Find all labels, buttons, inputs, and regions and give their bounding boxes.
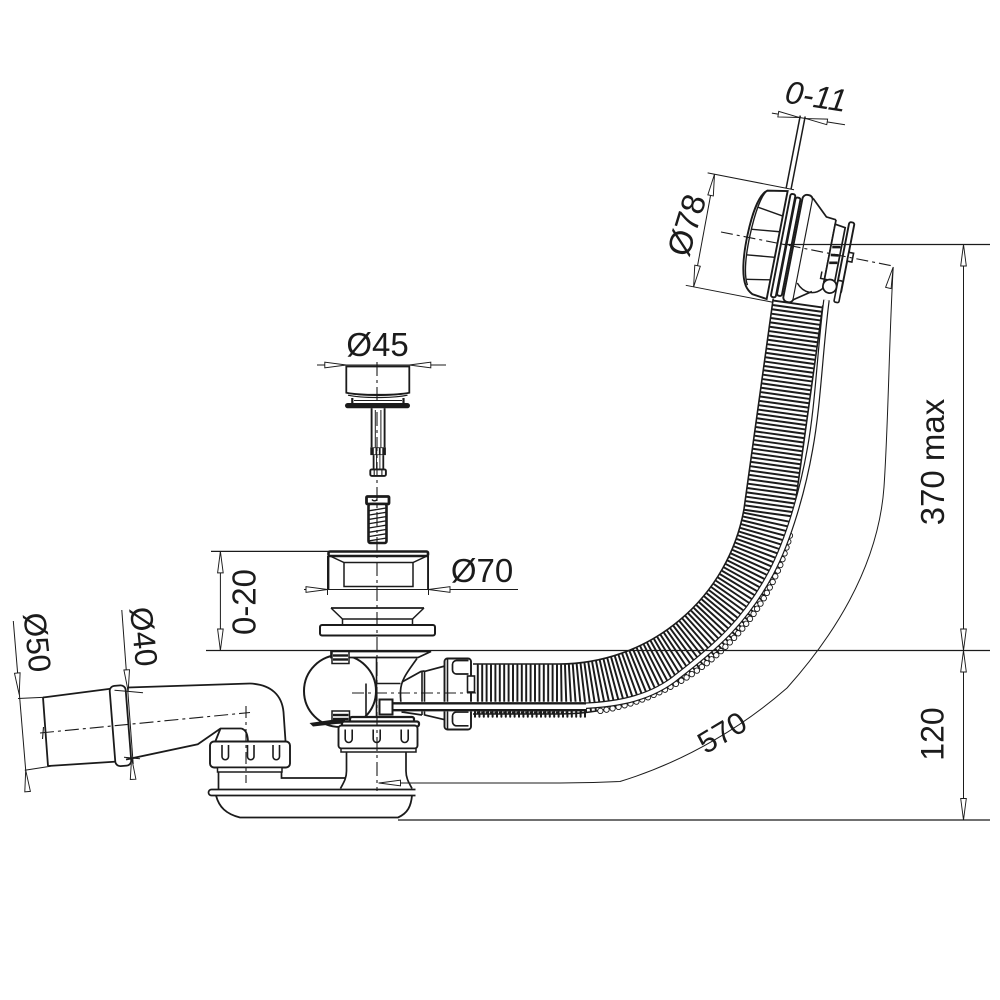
svg-text:370 max: 370 max [914, 398, 951, 525]
svg-text:Ø45: Ø45 [346, 326, 408, 363]
svg-text:Ø70: Ø70 [451, 552, 513, 589]
svg-text:Ø50: Ø50 [16, 611, 58, 674]
svg-text:120: 120 [915, 707, 951, 760]
svg-text:0-20: 0-20 [226, 569, 263, 635]
svg-text:Ø40: Ø40 [123, 605, 165, 668]
